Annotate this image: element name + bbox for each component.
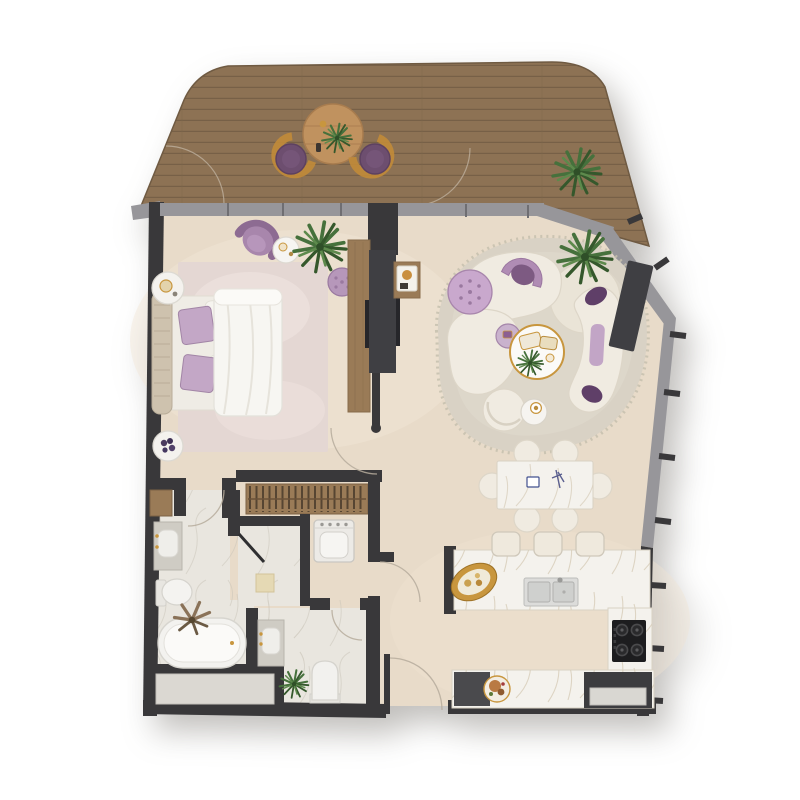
shower-mat xyxy=(256,574,274,592)
bed-pillow-purple xyxy=(178,306,216,345)
bar-stool xyxy=(534,532,562,556)
table-item-gold xyxy=(320,121,327,128)
wardrobe-hanging-rail xyxy=(246,484,368,514)
tufted-pouf xyxy=(448,270,492,314)
floor-plan-image xyxy=(0,0,800,800)
serving-plate xyxy=(484,676,510,702)
cup-side-table xyxy=(521,399,547,425)
wardrobe-back-wall xyxy=(236,470,382,482)
shower-left-wall xyxy=(228,490,240,536)
bath-door-jamb xyxy=(174,478,186,516)
entry-door-leaf xyxy=(384,654,390,714)
nightstand-top xyxy=(152,272,184,304)
bottom-counter xyxy=(452,670,654,708)
tub-drain xyxy=(230,641,234,645)
wc-top-wall-left xyxy=(310,598,330,610)
side-table-item xyxy=(503,331,512,338)
wc-right-wall xyxy=(366,608,380,716)
hall-closet-end xyxy=(150,490,172,516)
bath-toilet xyxy=(156,579,192,606)
dining-chair xyxy=(514,506,540,532)
dining-table xyxy=(497,461,593,509)
faucet xyxy=(557,577,562,582)
terrace-bistro-table xyxy=(303,104,363,164)
chaise-throw xyxy=(589,324,605,367)
bath-vanity xyxy=(154,522,182,570)
double-bed xyxy=(152,289,282,416)
bar-stool xyxy=(576,532,604,556)
structural-column xyxy=(368,203,398,255)
bed-pillow-purple xyxy=(180,354,217,393)
wc-vanity xyxy=(258,620,284,666)
kitchen-sink xyxy=(524,577,578,606)
cooktop xyxy=(612,620,646,662)
tv-screen-bedroom-side xyxy=(365,300,369,348)
divider-post xyxy=(372,373,380,425)
lounge-chair xyxy=(483,389,525,431)
utility-door-cap xyxy=(368,552,394,562)
nightstand-bottom xyxy=(153,431,183,461)
table-item-dark xyxy=(316,143,321,152)
duvet-fold-top xyxy=(214,289,282,305)
wc-toilet xyxy=(310,661,340,703)
washing-machine xyxy=(314,520,354,562)
utility-right-wall xyxy=(368,470,380,560)
floor-plan xyxy=(130,62,690,718)
tv-screen-living-side xyxy=(396,294,400,346)
fridge-unit xyxy=(584,672,652,708)
bar-stools xyxy=(492,532,604,556)
tub-wc-divider xyxy=(246,608,258,668)
bar-stool xyxy=(492,532,520,556)
window-wall-top xyxy=(160,203,544,216)
console-shelf xyxy=(394,262,420,298)
table-decor-blue xyxy=(527,477,539,487)
shower-top-wall xyxy=(236,516,302,526)
coffee-table xyxy=(510,325,564,379)
storage-niche xyxy=(146,664,284,712)
dining-chair xyxy=(552,506,578,532)
post-cap xyxy=(371,423,381,433)
tall-counter-right xyxy=(608,608,652,674)
utility-left-wall xyxy=(300,514,310,606)
wc-top-wall-right xyxy=(360,598,380,610)
floor-plan-svg xyxy=(0,0,800,800)
double-sided-tv-wall xyxy=(369,250,396,373)
